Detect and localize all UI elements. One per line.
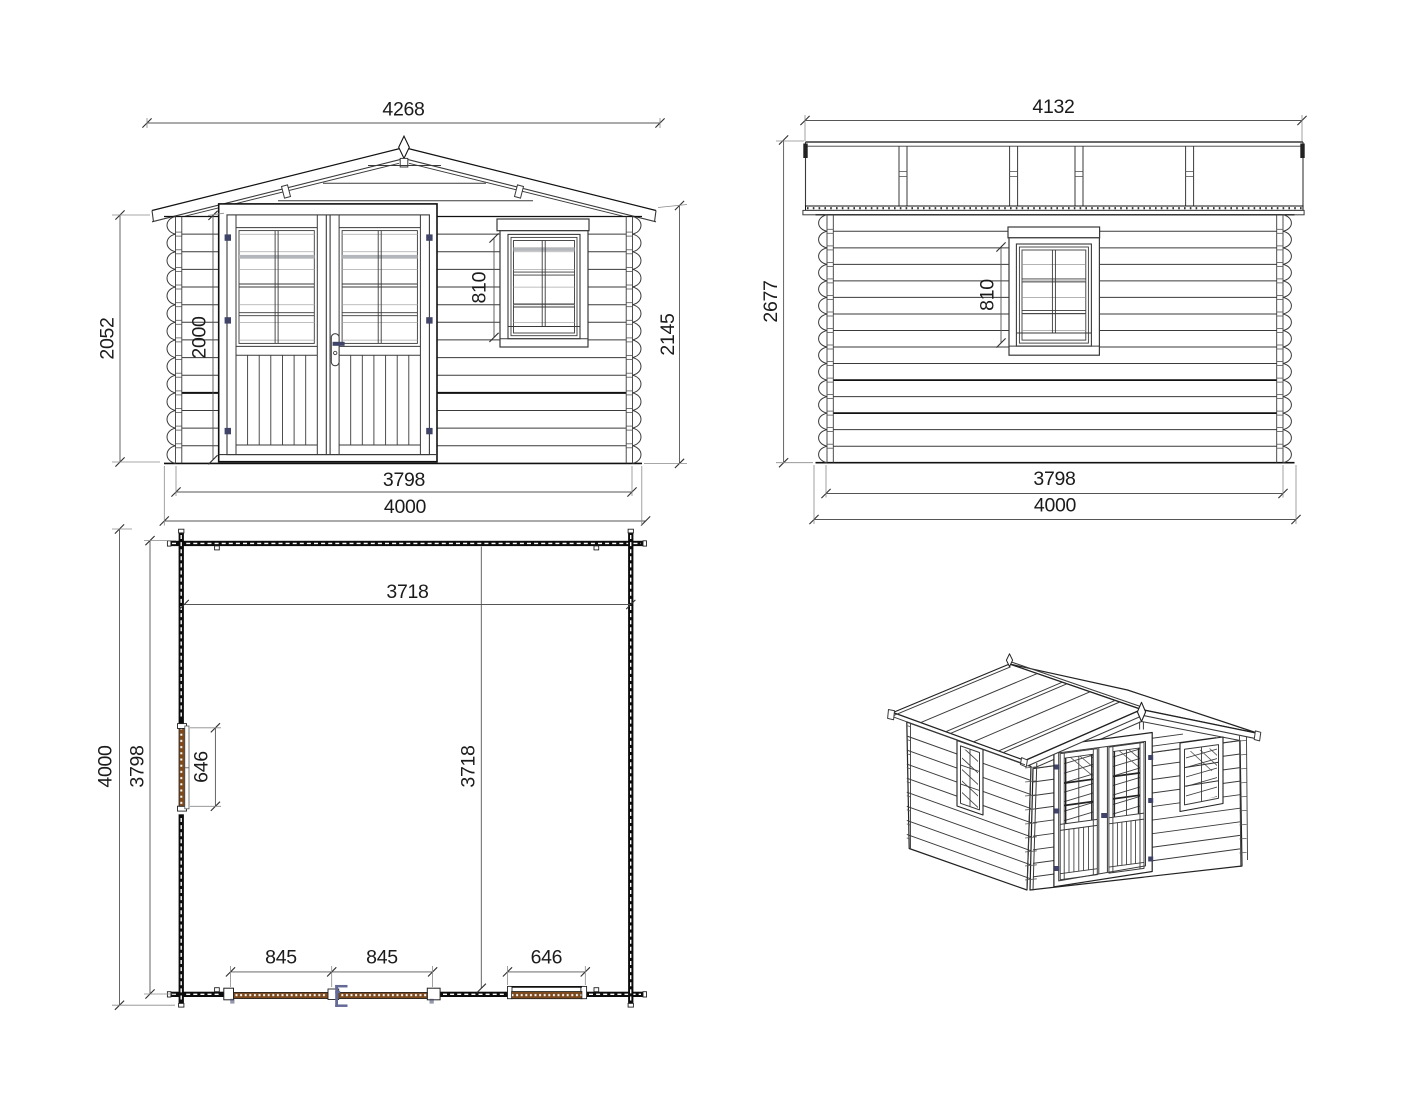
svg-text:3798: 3798 <box>383 469 425 491</box>
svg-text:3798: 3798 <box>127 745 149 787</box>
svg-text:4000: 4000 <box>384 496 427 518</box>
svg-text:845: 845 <box>366 947 398 969</box>
svg-text:2052: 2052 <box>97 317 119 359</box>
svg-text:3718: 3718 <box>386 581 428 603</box>
svg-text:646: 646 <box>531 947 563 969</box>
svg-text:810: 810 <box>977 279 999 311</box>
svg-text:4000: 4000 <box>95 745 117 788</box>
svg-text:646: 646 <box>191 751 213 783</box>
svg-text:2677: 2677 <box>760 280 782 322</box>
svg-text:2000: 2000 <box>189 316 211 359</box>
svg-text:2145: 2145 <box>657 313 679 356</box>
svg-text:4000: 4000 <box>1034 495 1077 517</box>
svg-text:3718: 3718 <box>458 745 480 787</box>
svg-text:810: 810 <box>469 271 491 303</box>
svg-text:845: 845 <box>265 947 297 969</box>
svg-text:3798: 3798 <box>1033 468 1075 490</box>
svg-text:4132: 4132 <box>1032 96 1074 118</box>
svg-text:4268: 4268 <box>382 99 424 121</box>
